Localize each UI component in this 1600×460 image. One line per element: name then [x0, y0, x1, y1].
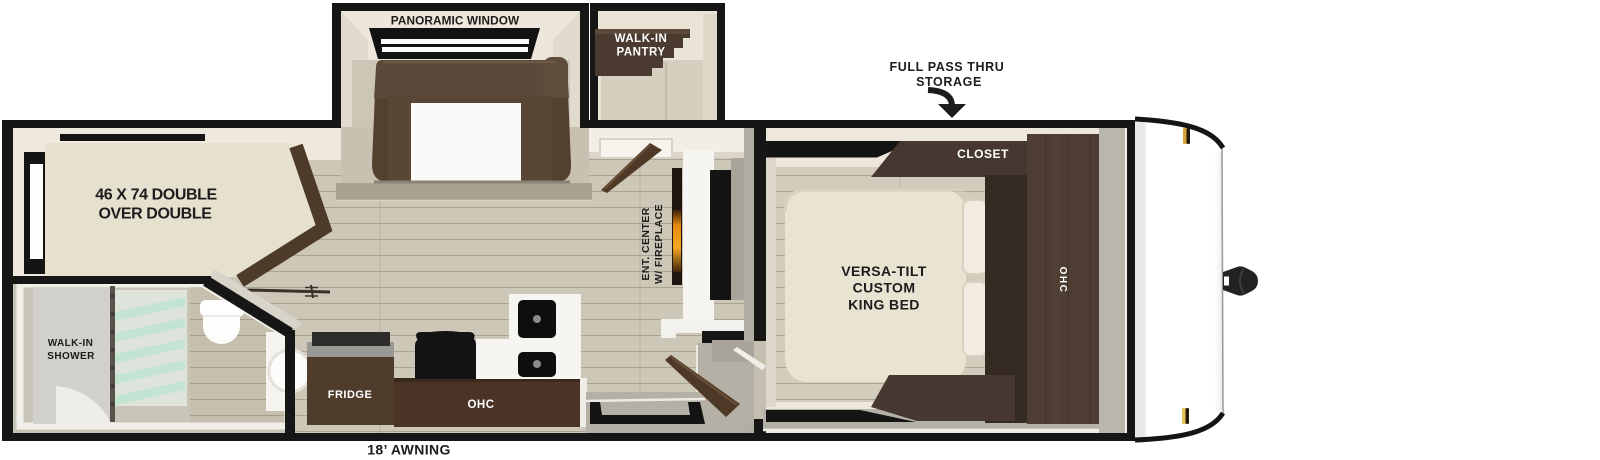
svg-text:PANTRY: PANTRY [617, 47, 666, 59]
svg-text:STORAGE: STORAGE [916, 75, 982, 89]
svg-text:OHC: OHC [1057, 267, 1068, 294]
svg-text:ENT. CENTER: ENT. CENTER [640, 207, 652, 280]
svg-text:OVER DOUBLE: OVER DOUBLE [99, 206, 213, 223]
svg-text:FULL PASS THRU: FULL PASS THRU [890, 60, 1005, 74]
svg-text:CLOSET: CLOSET [957, 147, 1009, 161]
svg-text:VERSA-TILT: VERSA-TILT [841, 263, 926, 279]
svg-text:PANORAMIC WINDOW: PANORAMIC WINDOW [391, 14, 520, 28]
svg-text:SHOWER: SHOWER [47, 351, 95, 362]
svg-text:WALK-IN: WALK-IN [615, 33, 668, 45]
svg-text:W/ FIREPLACE: W/ FIREPLACE [653, 204, 665, 284]
svg-text:18’ AWNING: 18’ AWNING [367, 442, 451, 458]
svg-text:CUSTOM: CUSTOM [853, 280, 916, 296]
svg-text:OHC: OHC [467, 399, 494, 411]
svg-text:46 X 74 DOUBLE: 46 X 74 DOUBLE [95, 187, 217, 204]
svg-text:KING BED: KING BED [848, 297, 920, 313]
svg-text:WALK-IN: WALK-IN [48, 338, 94, 349]
svg-text:FRIDGE: FRIDGE [328, 389, 373, 401]
